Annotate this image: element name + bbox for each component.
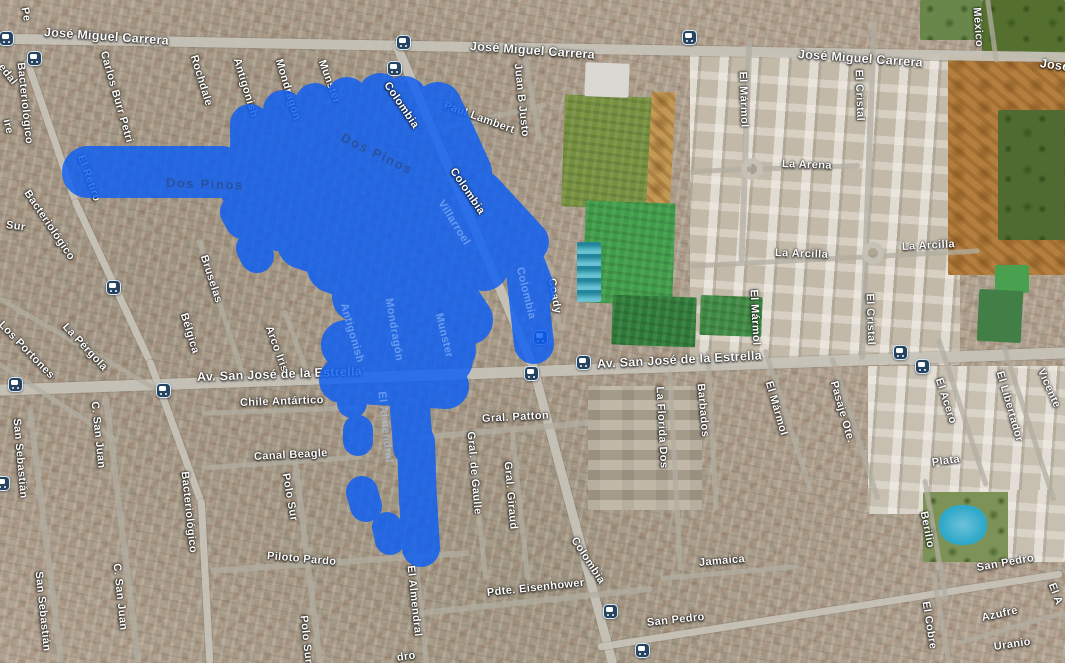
street-label: Dos Pinos bbox=[166, 176, 244, 192]
street-label: Colombia bbox=[514, 266, 538, 320]
street-label: Villarroel bbox=[435, 199, 471, 248]
street-label: Colombia bbox=[447, 166, 486, 216]
street-label: Dos Pinos bbox=[339, 131, 415, 177]
street-label: Antigonish bbox=[338, 302, 366, 364]
satellite-map-canvas[interactable]: PeireedalBacteriológicoJosé Miguel Carre… bbox=[0, 0, 1065, 663]
street-label: Munster bbox=[433, 312, 455, 359]
street-labels-overlay-layer: ColombiaDos PinosDos PinosColombiaVillar… bbox=[0, 0, 1065, 663]
street-label: El Almendral bbox=[376, 391, 394, 463]
street-label: Mondragón bbox=[383, 298, 405, 362]
street-label: Colombia bbox=[381, 80, 420, 130]
